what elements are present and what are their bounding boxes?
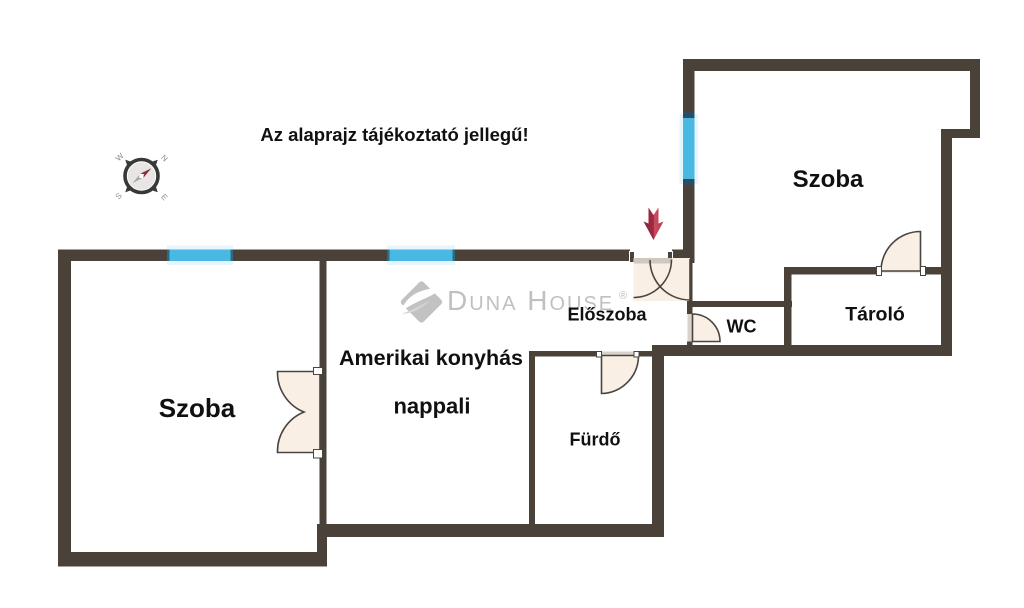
svg-text:Amerikai konyhás: Amerikai konyhás <box>339 346 523 370</box>
svg-text:Az alaprajz tájékoztató jelleg: Az alaprajz tájékoztató jellegű! <box>260 124 528 145</box>
svg-text:Szoba: Szoba <box>793 166 864 193</box>
svg-text:Előszoba: Előszoba <box>567 305 647 325</box>
svg-text:WC: WC <box>727 317 757 337</box>
svg-text:Tároló: Tároló <box>845 304 905 326</box>
svg-text:Szoba: Szoba <box>159 393 236 423</box>
svg-text:Fürdő: Fürdő <box>570 430 621 450</box>
svg-text:nappali: nappali <box>393 394 470 419</box>
svg-text:®: ® <box>619 290 627 302</box>
